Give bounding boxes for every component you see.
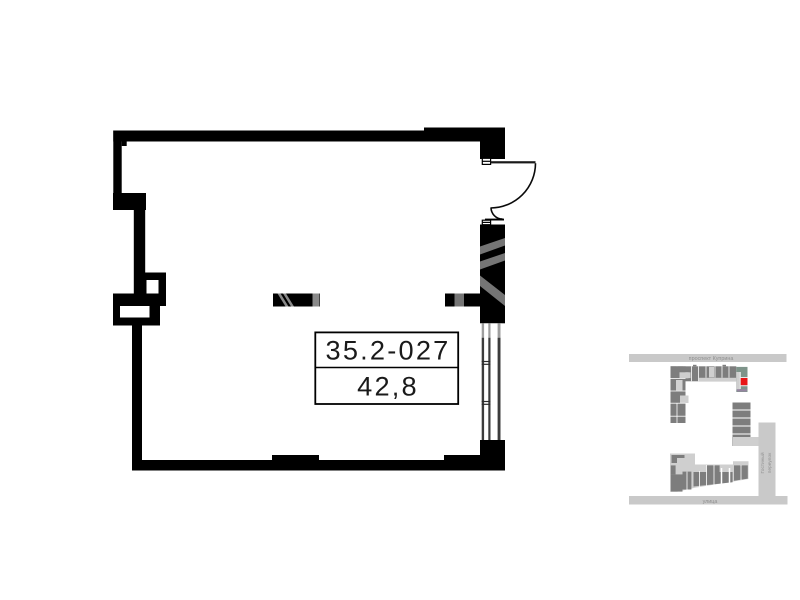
svg-text:проспект Куприна: проспект Куприна bbox=[689, 356, 734, 362]
svg-text:Гостиный: Гостиный bbox=[759, 452, 766, 473]
svg-text:переулок: переулок bbox=[768, 452, 773, 473]
svg-text:42,8: 42,8 bbox=[357, 371, 419, 402]
svg-text:улица: улица bbox=[703, 499, 718, 505]
svg-text:35.2-027: 35.2-027 bbox=[326, 335, 451, 366]
